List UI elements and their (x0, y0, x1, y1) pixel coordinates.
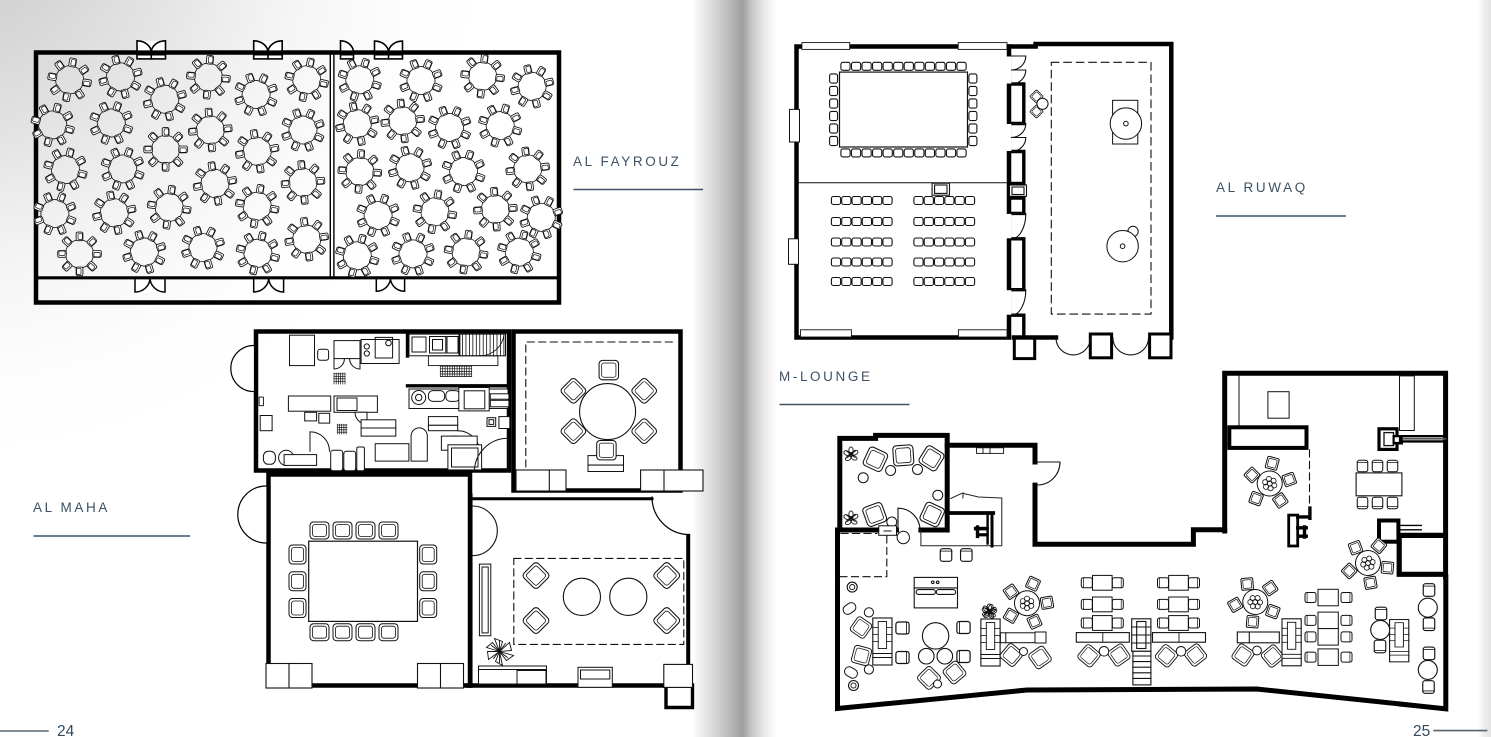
svg-text:24: 24 (57, 723, 75, 737)
svg-text:AL FAYROUZ: AL FAYROUZ (573, 154, 682, 169)
svg-text:M-LOUNGE: M-LOUNGE (779, 369, 873, 384)
svg-text:AL RUWAQ: AL RUWAQ (1216, 180, 1308, 195)
svg-text:AL MAHA: AL MAHA (33, 500, 110, 515)
svg-text:25: 25 (1413, 723, 1430, 737)
